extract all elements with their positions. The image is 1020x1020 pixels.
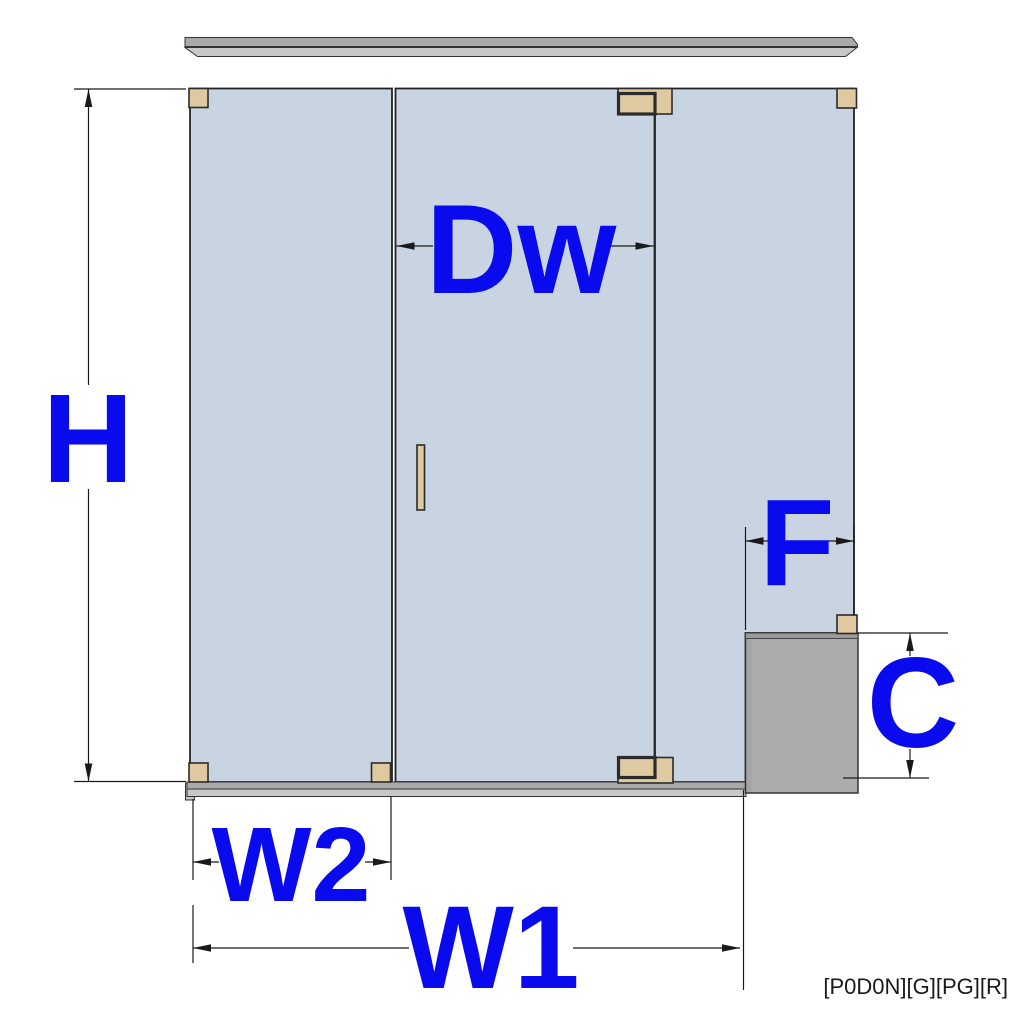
top-rail-upper-band (185, 38, 858, 47)
dimension-height: H (43, 89, 187, 782)
door-width-label: Dw (426, 178, 618, 320)
bottom-rail-lower-band (187, 789, 746, 797)
dimension-curb-height: C (843, 632, 959, 778)
arrow-left-icon (193, 858, 211, 866)
arrow-left-icon (193, 944, 211, 952)
curb-height-label: C (867, 632, 959, 775)
arrow-right-icon (373, 858, 391, 866)
configuration-code: [P0D0N][G][PG][R] (823, 974, 1008, 999)
arrow-down-icon (85, 764, 93, 782)
glass-clamp-top-left (189, 89, 208, 108)
total-width-label: W1 (403, 882, 580, 1014)
dimension-door-width: Dw (397, 178, 654, 320)
door-handle (417, 445, 425, 510)
height-label: H (43, 368, 134, 509)
glass-clamp-bottom-left (189, 763, 208, 782)
arrow-right-icon (722, 944, 740, 952)
arrow-up-icon (85, 89, 93, 107)
glass-clamp-top-right (837, 89, 857, 109)
glass-clamp-curb (837, 615, 857, 634)
hinge-clamp (619, 94, 656, 115)
door-hinge-bottom (618, 758, 673, 784)
hinge-clamp (619, 758, 656, 778)
fixed-offset-label: F (759, 475, 834, 612)
door-hinge-top (618, 89, 672, 115)
bottom-rail (186, 782, 747, 800)
top-rail (185, 38, 858, 57)
glass-clamp-bottom-mid (372, 763, 391, 782)
curb-left-edge (747, 634, 752, 792)
dimension-panel2-width: W2 (193, 797, 391, 924)
panel2-width-label: W2 (212, 806, 371, 924)
top-rail-lower-band (185, 48, 857, 57)
drawing-canvas: H Dw W2 W1 F C [P0D0N][G][ (0, 0, 1020, 1020)
curb-face (746, 633, 859, 793)
left-glass-panel (190, 89, 392, 783)
curb-block (746, 633, 859, 793)
dimension-diagram: H Dw W2 W1 F C [P0D0N][G][ (0, 0, 1020, 1020)
